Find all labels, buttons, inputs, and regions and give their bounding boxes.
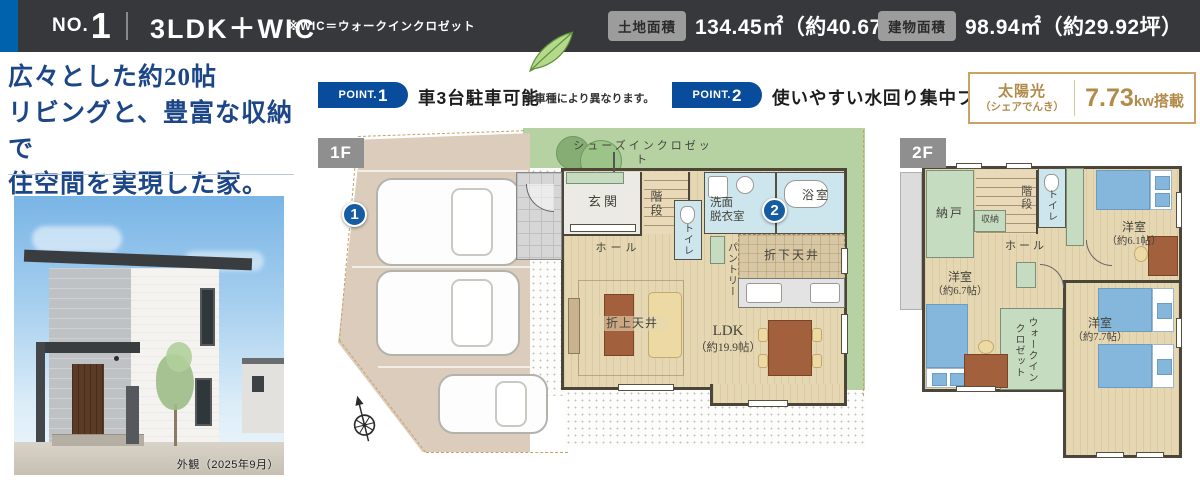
window: [956, 386, 996, 392]
point1-badge-word: POINT.: [339, 89, 377, 101]
front-door: [72, 364, 104, 434]
closet-strip-2f: [1066, 168, 1084, 246]
hall-closet-2f: [1016, 262, 1036, 288]
point1-badge: POINT. 1: [318, 82, 408, 108]
car-3: [438, 374, 548, 434]
header-divider: [126, 12, 128, 40]
genkan-step: [570, 224, 636, 232]
site-boundary: [426, 452, 568, 453]
dining-table: [768, 320, 812, 376]
floor-plan-1f: シューズインクロゼット 玄関 階段 トイレ 洗面 脱衣室 浴室 ホール パントリ…: [318, 128, 878, 482]
header-bar: NO. 1 3LDK＋WIC ※WIC＝ウォークインクロゼット 土地面積 134…: [0, 0, 1200, 52]
window: [748, 400, 788, 407]
label-ldk-size: （約19.9帖）: [690, 341, 766, 355]
chair: [1134, 246, 1148, 262]
lower-window: [195, 378, 212, 426]
building-area-badge: 建物面積: [878, 11, 956, 41]
label-bedroom3: 洋室 （約7.7帖）: [1060, 316, 1140, 344]
label-bedroom1: 洋室 （約6.1帖）: [1092, 220, 1176, 248]
wall-lamp: [114, 356, 119, 361]
desk: [964, 354, 1008, 388]
layout-note: ※WIC＝ウォークインクロゼット: [288, 0, 476, 52]
solar-value-unit: kw搭載: [1134, 93, 1184, 110]
bed-pillow: [926, 368, 968, 388]
label-washroom: 洗面 脱衣室: [706, 196, 762, 225]
neighbor-window: [252, 376, 264, 392]
label-bath: 浴室: [796, 188, 836, 203]
car-1: [376, 178, 520, 266]
exterior-photo: 外観（2025年9月）: [14, 196, 284, 475]
solar-value: 7.73kw搭載: [1075, 84, 1194, 113]
label-hall-1f: ホール: [586, 242, 650, 256]
window: [1136, 452, 1164, 458]
label-bedroom3-name: 洋室: [1060, 316, 1140, 331]
chair: [978, 340, 994, 354]
label-genkan: 玄関: [576, 194, 632, 210]
catch-copy-line1: 広々とした約20帖: [8, 60, 308, 96]
label-ldk-name: LDK: [690, 322, 766, 341]
bed-pillow: [1150, 170, 1172, 210]
label-nando: 納戸: [930, 206, 970, 221]
label-wic: ウォークインクロゼット: [1012, 314, 1038, 386]
catch-copy-line2: リビングと、豊富な収納で: [8, 96, 308, 168]
solar-box: 太陽光 （シェアでんき） 7.73kw搭載: [968, 72, 1196, 124]
header-accent-stripe: [0, 0, 18, 52]
floor-tag-1f: 1F: [318, 138, 364, 168]
window: [841, 248, 848, 274]
window: [1096, 452, 1124, 458]
flyer-canvas: NO. 1 3LDK＋WIC ※WIC＝ウォークインクロゼット 土地面積 134…: [0, 0, 1200, 483]
point2-badge: POINT. 2: [672, 82, 762, 108]
label-stairs-1f: 階段: [648, 180, 663, 228]
building-area-group: 建物面積 98.94㎡（約29.92坪）: [878, 0, 1183, 52]
label-pantry: パントリー: [724, 234, 737, 304]
plan-number-label: NO.: [52, 15, 89, 37]
bed: [1098, 344, 1152, 388]
tree-trunk: [174, 404, 177, 446]
floor-tag-2f: 2F: [900, 138, 946, 168]
plan-number: NO. 1: [52, 0, 111, 52]
solar-label-line2: （シェアでんき）: [970, 101, 1074, 113]
upper-window: [200, 288, 215, 346]
car-2: [376, 270, 520, 356]
point2-marker: 2: [762, 198, 787, 223]
bed: [926, 304, 968, 368]
point2-badge-num: 2: [732, 87, 741, 104]
label-up-ceiling: 折上天井: [596, 316, 668, 331]
stall-line: [378, 366, 530, 368]
photo-caption: 外観（2025年9月）: [177, 456, 279, 472]
bed-pillow: [1152, 288, 1174, 332]
building-area-value: 98.94㎡（約29.92坪）: [965, 11, 1183, 41]
neighbor-house: [242, 358, 284, 433]
label-bedroom2: 洋室 （約6.7帖）: [918, 270, 1002, 298]
kitchen-sink: [746, 283, 782, 303]
window: [1176, 318, 1182, 348]
bed: [1096, 170, 1150, 210]
land-area-badge: 土地面積: [608, 11, 686, 41]
floor-plan-2f: 納戸 階段 収納 トイレ ホール 洋室 （約6.1帖） 洋室 （約6.7帖） 洋…: [900, 128, 1200, 482]
point1-note: ※車種により異なります。: [524, 90, 654, 106]
dining-chair: [758, 354, 768, 368]
plan-number-value: 1: [91, 8, 111, 44]
catch-copy-rule: [8, 174, 294, 175]
stall-line: [358, 170, 528, 172]
mail-post: [126, 386, 139, 444]
dining-chair: [812, 328, 822, 342]
sink-fixture: [736, 176, 754, 194]
label-toilet-1f: トイレ: [680, 220, 693, 258]
canopy-post: [36, 342, 45, 442]
stall-line: [352, 266, 530, 268]
tv-board: [568, 298, 580, 354]
shoes-closet-pointer: [613, 152, 615, 172]
window: [618, 384, 674, 391]
entrance-canopy: [36, 342, 140, 353]
washer-fixture: [708, 176, 728, 198]
solar-value-num: 7.73: [1085, 84, 1134, 112]
point1-text: 車3台駐車可能: [418, 85, 540, 110]
window: [1006, 163, 1032, 169]
label-bedroom2-name: 洋室: [918, 270, 1002, 285]
point1-marker: 1: [342, 202, 367, 227]
dining-chair: [812, 354, 822, 368]
tree-foliage: [166, 342, 192, 372]
label-bedroom1-name: 洋室: [1092, 220, 1176, 235]
label-ldk: LDK （約19.9帖）: [690, 322, 766, 355]
label-down-ceiling: 折下天井: [748, 248, 836, 263]
label-shoes-closet: シューズインクロゼット: [568, 140, 718, 168]
solar-label: 太陽光 （シェアでんき）: [970, 83, 1074, 112]
label-shuno: 収納: [974, 214, 1006, 225]
bed-pillow: [1152, 344, 1174, 388]
label-bedroom2-size: （約6.7帖）: [918, 285, 1002, 298]
window: [1176, 192, 1182, 228]
shoes-closet: [566, 172, 624, 184]
window: [956, 163, 982, 169]
solar-label-line1: 太陽光: [970, 83, 1074, 100]
label-hall-2f: ホール: [996, 240, 1056, 254]
leaf-icon: [524, 26, 576, 76]
label-toilet-2f: トイレ: [1044, 186, 1057, 224]
label-bedroom1-size: （約6.1帖）: [1092, 235, 1176, 248]
cloud: [32, 226, 122, 252]
label-bedroom3-size: （約7.7帖）: [1060, 331, 1140, 344]
catch-copy: 広々とした約20帖 リビングと、豊富な収納で 住空間を実現した家。: [8, 60, 308, 203]
point1-badge-num: 1: [378, 87, 387, 104]
kitchen-stove: [810, 283, 840, 303]
point2-badge-word: POINT.: [693, 89, 731, 101]
site-boundary: [863, 130, 864, 396]
window: [841, 314, 848, 354]
label-stairs-2f: 階段: [1018, 176, 1032, 220]
pantry-closet: [710, 236, 725, 264]
